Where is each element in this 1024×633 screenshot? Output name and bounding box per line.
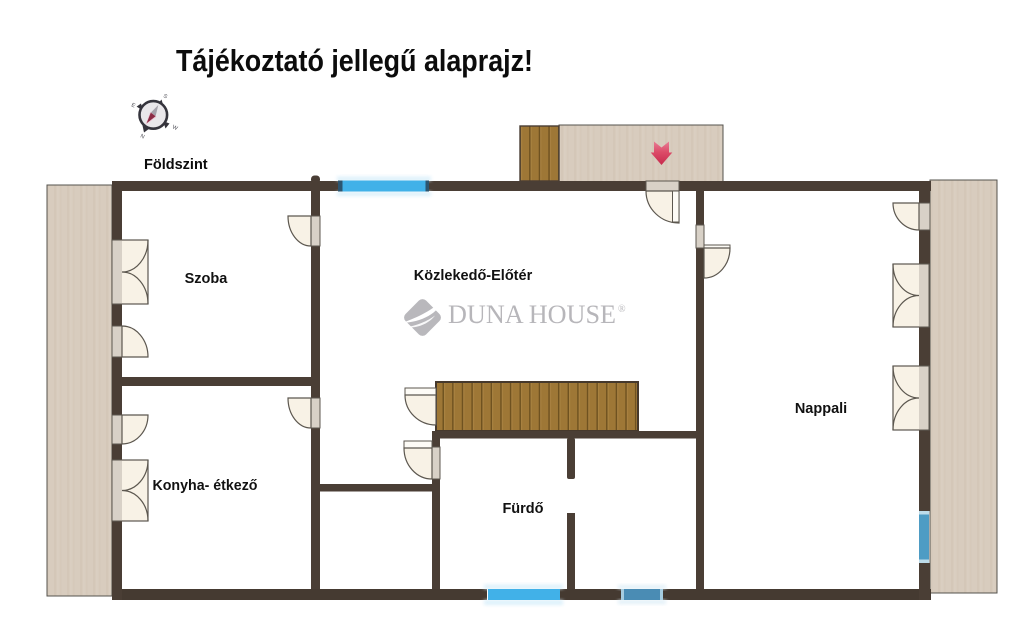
svg-text:Konyha- étkező: Konyha- étkező <box>153 478 258 494</box>
svg-text:Szoba: Szoba <box>185 271 229 287</box>
svg-text:Közlekedő-Előtér: Közlekedő-Előtér <box>414 268 533 284</box>
svg-text:Tájékoztató jellegű alaprajz!: Tájékoztató jellegű alaprajz! <box>176 43 533 78</box>
svg-text:Földszint: Földszint <box>144 157 208 173</box>
svg-text:Nappali: Nappali <box>795 401 847 417</box>
svg-text:DUNA HOUSE: DUNA HOUSE <box>448 300 616 329</box>
svg-text:Fürdő: Fürdő <box>502 501 543 517</box>
svg-text:®: ® <box>618 304 626 315</box>
